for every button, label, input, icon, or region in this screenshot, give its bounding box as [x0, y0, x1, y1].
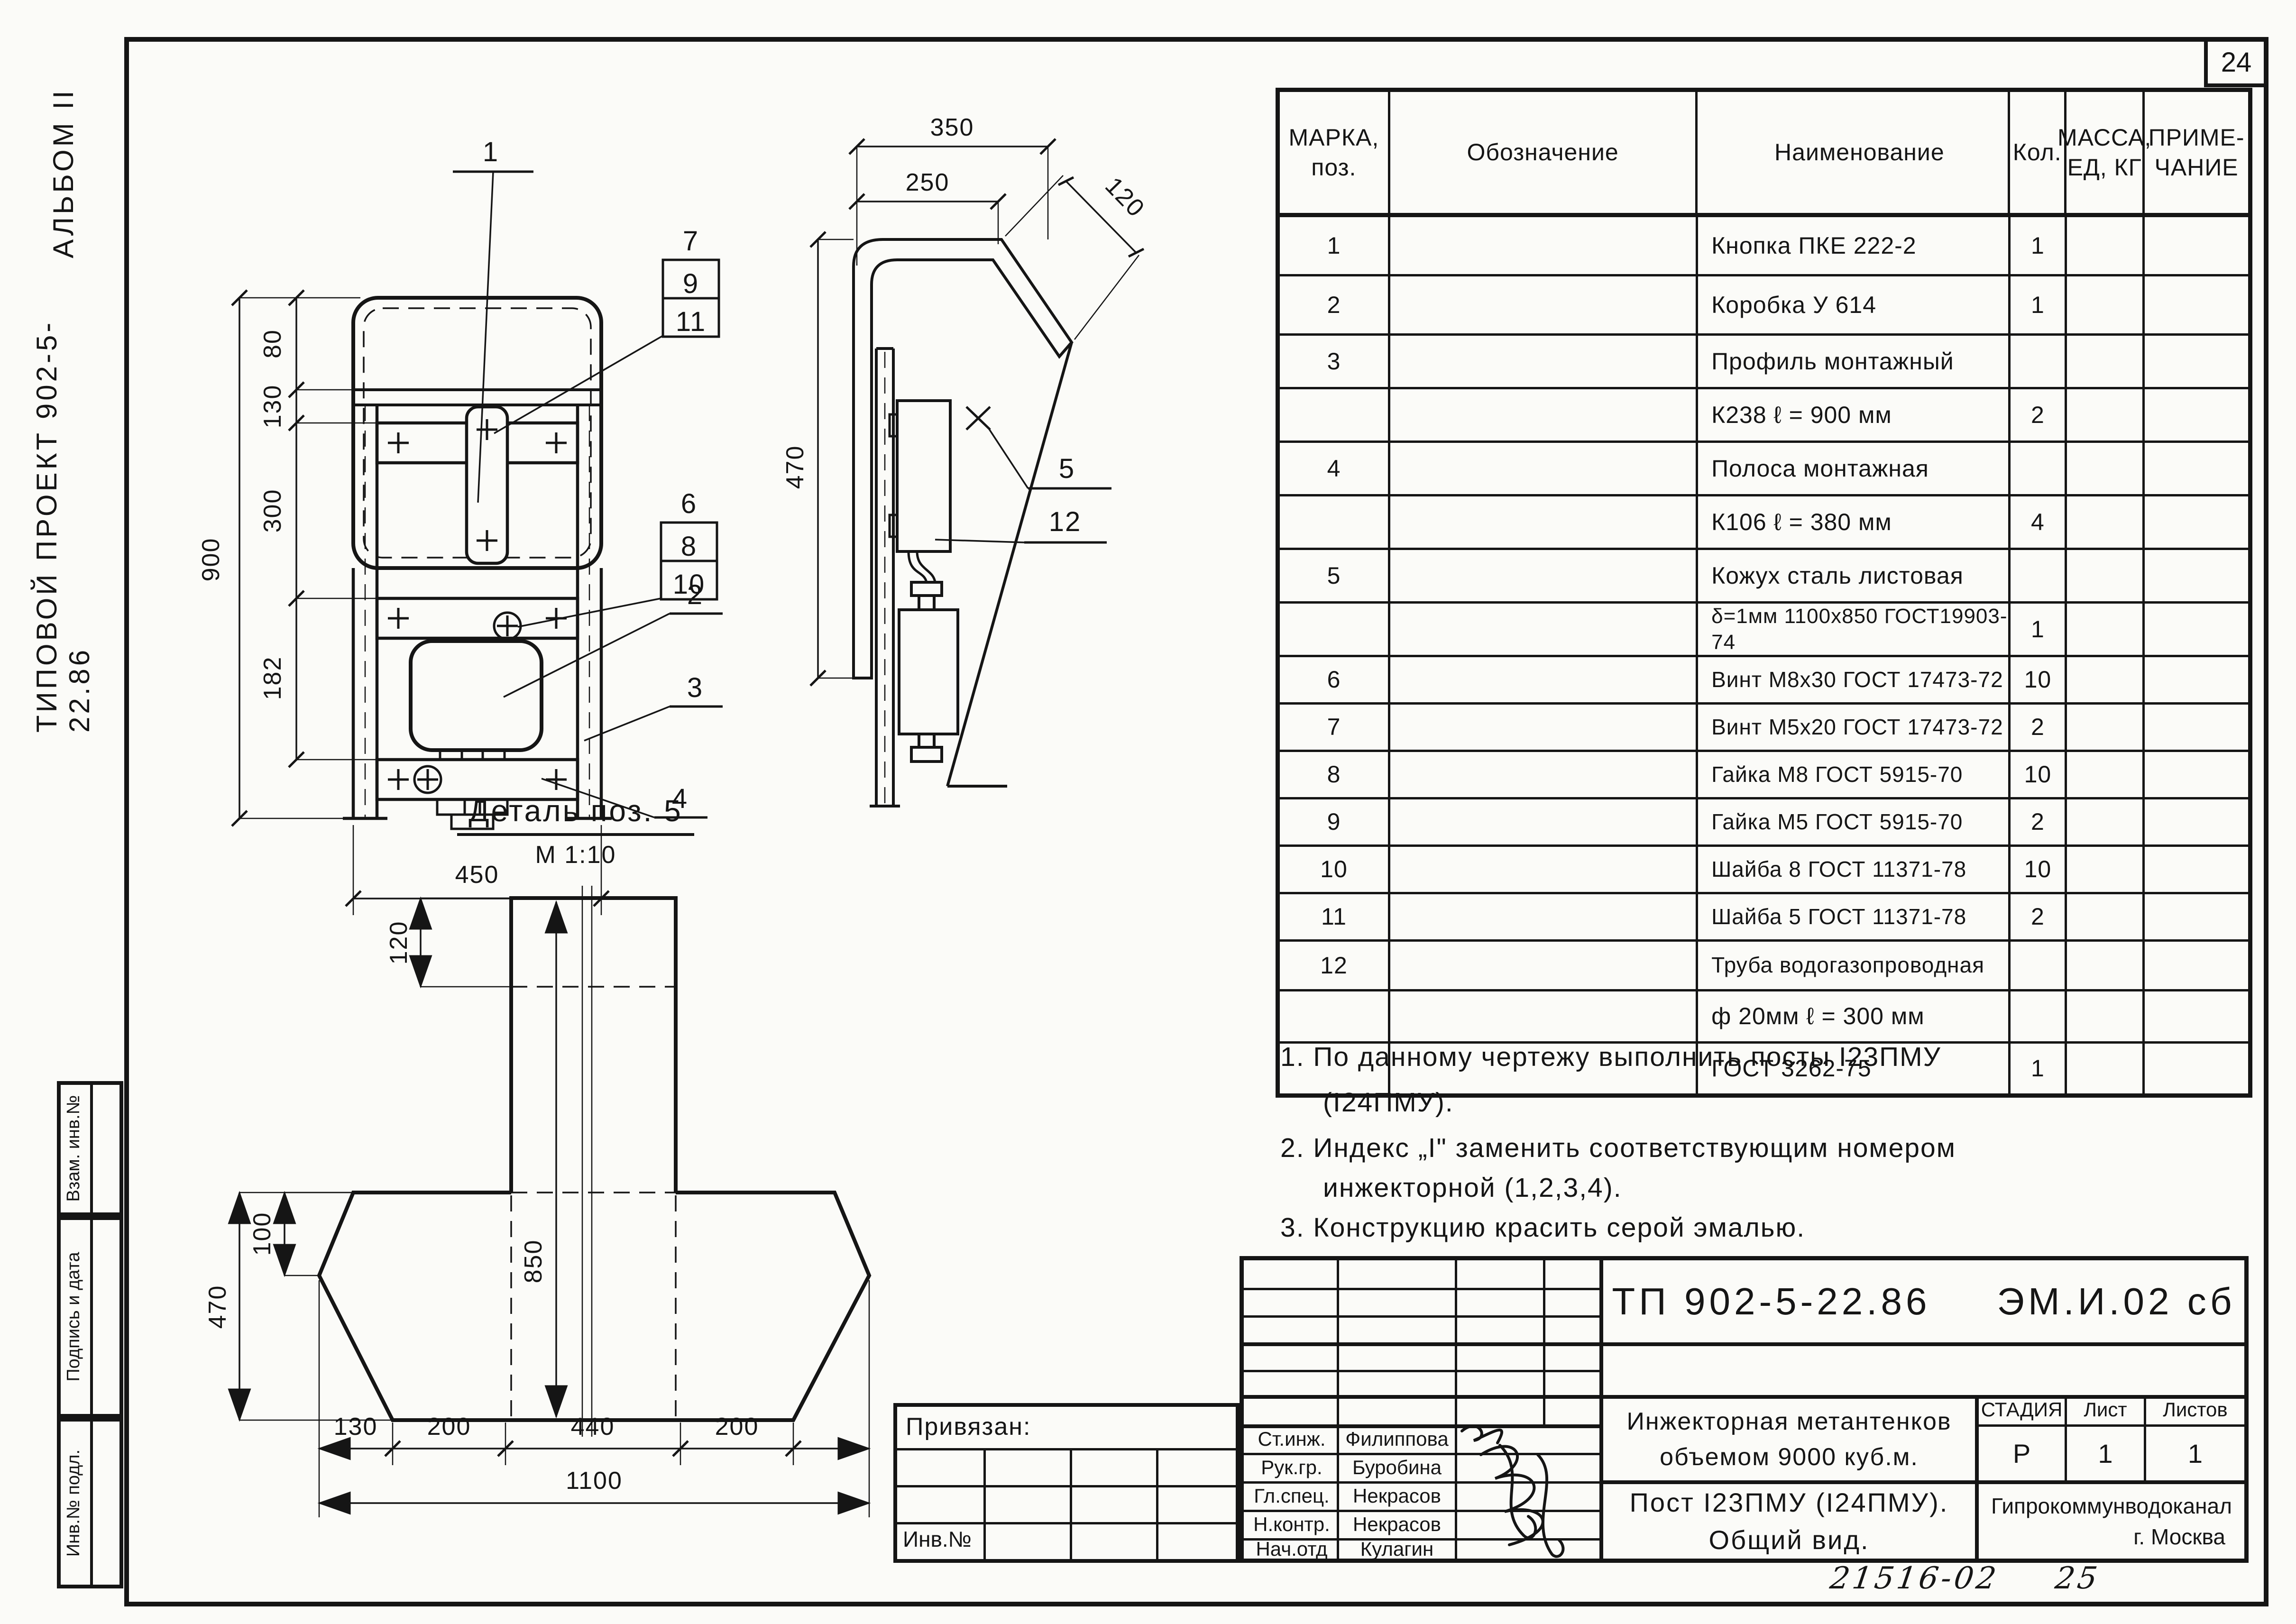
cell-name: δ=1мм 1100х850 ГОСТ19903-74: [1698, 604, 2011, 655]
dim-200b: 200: [715, 1413, 759, 1440]
cell-name: Шайба 5 ГОСТ 11371-78: [1698, 894, 2011, 939]
dim-470-side: 470: [781, 445, 809, 489]
cell-note: [2145, 942, 2248, 989]
note-1-line1: 1. По данному чертежу выполнить посты I2…: [1280, 1041, 1941, 1073]
cell-qty: 10: [2011, 752, 2067, 797]
cell-designation: [1390, 217, 1698, 274]
callout-8: 8: [681, 531, 697, 562]
cell-name: Винт М8х30 ГОСТ 17473-72: [1698, 657, 2011, 702]
dim-100: 100: [248, 1212, 276, 1256]
cell-mark: [1280, 389, 1390, 440]
sheet-value: 1: [2067, 1427, 2144, 1480]
cell-name: Кожух сталь листовая: [1698, 550, 2011, 601]
person-role: Н.контр.: [1247, 1511, 1337, 1538]
table-row: 7 Винт М5х20 ГОСТ 17473-72 2: [1280, 705, 2248, 752]
person-name: Буробина: [1339, 1454, 1455, 1481]
col-header-note: ПРИМЕ- ЧАНИЕ: [2145, 92, 2248, 213]
cell-name: К238 ℓ = 900 мм: [1698, 389, 2011, 440]
cell-note: [2145, 657, 2248, 702]
box-u614: [411, 641, 542, 750]
dim-470-detail: 470: [204, 1285, 231, 1329]
stamp-line: [1244, 1315, 1599, 1318]
cell-note: [2145, 336, 2248, 387]
cell-note: [2145, 276, 2248, 333]
callout-7: 7: [683, 226, 699, 257]
org-line1: Гипрокоммунводоканал: [1991, 1491, 2232, 1521]
cell-name: Гайка М5 ГОСТ 5915-70: [1698, 799, 2011, 844]
organization-cell: Гипрокоммунводоканал г. Москва: [1979, 1484, 2244, 1559]
cell-qty: 2: [2011, 389, 2067, 440]
person-role: Гл.спец.: [1247, 1482, 1337, 1510]
signatures-scribble: [1452, 1412, 1609, 1569]
parts-table-header: МАРКА, поз. Обозначение Наименование Кол…: [1280, 92, 2248, 217]
sheets-label: Листов: [2146, 1395, 2244, 1424]
cell-name: Полоса монтажная: [1698, 443, 2011, 494]
cell-mass: [2067, 443, 2145, 494]
callout-1: 1: [483, 137, 499, 167]
cell-qty: [2011, 336, 2067, 387]
cell-mass: [2067, 705, 2145, 750]
cell-designation: [1390, 389, 1698, 440]
cell-note: [2145, 705, 2248, 750]
cell-qty: 4: [2011, 496, 2067, 548]
sheet-label: Лист: [2067, 1395, 2144, 1424]
person-name: Филиппова: [1339, 1425, 1455, 1453]
cell-designation: [1390, 276, 1698, 333]
cell-designation: [1390, 799, 1698, 844]
cell-name: Гайка М8 ГОСТ 5915-70: [1698, 752, 2011, 797]
table-row: 9 Гайка М5 ГОСТ 5915-70 2: [1280, 799, 2248, 847]
cell-mark: [1280, 991, 1390, 1041]
cell-designation: [1390, 336, 1698, 387]
table-row: 2 Коробка У 614 1: [1280, 276, 2248, 336]
stamp-line: [1975, 1395, 1979, 1559]
person-name: Некрасов: [1339, 1511, 1455, 1538]
cell-name: ф 20мм ℓ = 300 мм: [1698, 991, 2011, 1041]
table-row: 1 Кнопка ПКЕ 222-2 1: [1280, 217, 2248, 276]
callout-5: 5: [1059, 453, 1075, 484]
note-2-line1: 2. Индекс „I" заменить соответствующим н…: [1280, 1132, 1956, 1164]
cell-mass: [2067, 942, 2145, 989]
attach-line: [1156, 1448, 1158, 1559]
cell-qty: 1: [2011, 217, 2067, 274]
note-1-line2: (I24ПМУ).: [1323, 1087, 1454, 1118]
cell-qty: [2011, 550, 2067, 601]
table-row: 5 Кожух сталь листовая: [1280, 550, 2248, 604]
attach-label: Привязан:: [906, 1413, 1031, 1441]
col-header-mass: МАССА, ЕД, КГ: [2066, 92, 2145, 213]
cell-mass: [2067, 799, 2145, 844]
cell-name: Коробка У 614: [1698, 276, 2011, 333]
detail-scale: М 1:10: [535, 841, 616, 869]
dim-182: 182: [259, 656, 286, 700]
cell-mass: [2067, 847, 2145, 892]
doc-number: ТП 902-5-22.86: [1612, 1280, 1930, 1323]
note-3: 3. Конструкцию красить серой эмалью.: [1280, 1212, 1805, 1243]
dim-300: 300: [259, 489, 286, 533]
dim-80: 80: [259, 329, 286, 358]
table-row: 12 Труба водогазопроводная: [1280, 942, 2248, 991]
archive-number-value: 21516-02: [1828, 1561, 2001, 1596]
dim-1100: 1100: [566, 1467, 623, 1495]
cell-note: [2145, 389, 2248, 440]
cell-name: Кнопка ПКЕ 222-2: [1698, 217, 2011, 274]
dim-440: 440: [571, 1413, 615, 1440]
cell-designation: [1390, 705, 1698, 750]
table-row: 10 Шайба 8 ГОСТ 11371-78 10: [1280, 847, 2248, 894]
table-row: К238 ℓ = 900 мм 2: [1280, 389, 2248, 443]
cell-mark: 6: [1280, 657, 1390, 702]
cell-mark: 4: [1280, 443, 1390, 494]
person-name: Кулагин: [1339, 1539, 1455, 1559]
cell-qty: [2011, 991, 2067, 1041]
cell-designation: [1390, 496, 1698, 548]
cell-qty: 1: [2011, 604, 2067, 655]
table-row: 4 Полоса монтажная: [1280, 443, 2248, 496]
dim-120-detail: 120: [385, 921, 413, 965]
table-row: δ=1мм 1100х850 ГОСТ19903-74 1: [1280, 604, 2248, 657]
cell-qty: 10: [2011, 657, 2067, 702]
drawing-title-cell: Пост I23ПМУ (I24ПМУ). Общий вид.: [1603, 1484, 1975, 1559]
dim-250: 250: [906, 169, 950, 196]
person-name: Некрасов: [1339, 1482, 1455, 1510]
cell-qty: 10: [2011, 847, 2067, 892]
table-row: 8 Гайка М8 ГОСТ 5915-70 10: [1280, 752, 2248, 799]
cell-note: [2145, 550, 2248, 601]
cell-designation: [1390, 550, 1698, 601]
button-side: [897, 401, 950, 551]
table-row: К106 ℓ = 380 мм 4: [1280, 496, 2248, 550]
stamp-line: [1244, 1288, 1599, 1290]
side-view-drawing: 350 250 120 470 5 12: [781, 114, 1150, 806]
stage-label: СТАДИЯ: [1979, 1395, 2065, 1424]
stamp-line: [1244, 1370, 1599, 1372]
cell-qty: 2: [2011, 705, 2067, 750]
cell-designation: [1390, 942, 1698, 989]
callout-2: 2: [687, 579, 703, 610]
cell-mass: [2067, 389, 2145, 440]
detail-view-drawing: Деталь поз. 5 М 1:10: [204, 794, 869, 1517]
pipe-cylinder: [899, 582, 958, 762]
cell-mass: [2067, 1044, 2145, 1093]
cell-mass: [2067, 752, 2145, 797]
stamp-line: [1599, 1480, 2244, 1484]
attach-line: [897, 1485, 1236, 1487]
cell-mass: [2067, 276, 2145, 333]
cell-name: Профиль монтажный: [1698, 336, 2011, 387]
cell-designation: [1390, 991, 1698, 1041]
cell-designation: [1390, 443, 1698, 494]
callout-12: 12: [1049, 506, 1082, 537]
cell-designation: [1390, 657, 1698, 702]
drawing-title-line2: Общий вид.: [1708, 1522, 1869, 1559]
parts-table: МАРКА, поз. Обозначение Наименование Кол…: [1276, 88, 2252, 1098]
archive-number: 21516-02 25: [1828, 1561, 2102, 1596]
subject-line2: объемом 9000 куб.м.: [1660, 1440, 1919, 1475]
cell-qty: 1: [2011, 276, 2067, 333]
cell-note: [2145, 217, 2248, 274]
title-block: ТП 902-5-22.86 ЭМ.И.02 сб Инжекторная ме…: [1240, 1256, 2249, 1563]
table-row: 11 Шайба 5 ГОСТ 11371-78 2: [1280, 894, 2248, 942]
cell-mark: 11: [1280, 894, 1390, 939]
dim-200a: 200: [427, 1413, 471, 1440]
sheets-value: 1: [2146, 1427, 2244, 1480]
cell-qty: 1: [2011, 1044, 2067, 1093]
attach-block: Привязан: Инв.№: [893, 1403, 1240, 1563]
cell-designation: [1390, 894, 1698, 939]
cell-designation: [1390, 604, 1698, 655]
cell-mark: 10: [1280, 847, 1390, 892]
attach-line: [1070, 1448, 1072, 1559]
cell-mass: [2067, 336, 2145, 387]
person-role: Рук.гр.: [1247, 1454, 1337, 1481]
dim-900: 900: [197, 538, 225, 582]
stamp-line: [1244, 1342, 2244, 1346]
dim-130: 130: [259, 385, 286, 429]
cell-note: [2145, 991, 2248, 1041]
cell-mass: [2067, 894, 2145, 939]
detail-title: Деталь поз. 5: [468, 794, 683, 828]
callout-3: 3: [687, 672, 703, 703]
dim-350: 350: [930, 114, 974, 141]
cell-mass: [2067, 550, 2145, 601]
cell-name: Винт М5х20 ГОСТ 17473-72: [1698, 705, 2011, 750]
table-row: 6 Винт М8х30 ГОСТ 17473-72 10: [1280, 657, 2248, 705]
cell-mark: 5: [1280, 550, 1390, 601]
cell-mark: 8: [1280, 752, 1390, 797]
subject-cell: Инжекторная метантенков объемом 9000 куб…: [1603, 1399, 1975, 1480]
cell-mark: 2: [1280, 276, 1390, 333]
dim-120-slant: 120: [1100, 172, 1150, 223]
cell-mark: 12: [1280, 942, 1390, 989]
col-header-name: Наименование: [1698, 92, 2010, 213]
cell-name: Шайба 8 ГОСТ 11371-78: [1698, 847, 2011, 892]
cell-note: [2145, 894, 2248, 939]
cell-mark: 1: [1280, 217, 1390, 274]
callout-9: 9: [683, 268, 699, 299]
org-line2: г. Москва: [2133, 1522, 2244, 1552]
cell-qty: [2011, 942, 2067, 989]
cell-mass: [2067, 604, 2145, 655]
table-row: ф 20мм ℓ = 300 мм: [1280, 991, 2248, 1044]
side-view-dims: [810, 139, 1144, 686]
cell-name: Труба водогазопроводная: [1698, 942, 2011, 989]
col-header-mark: МАРКА, поз.: [1280, 92, 1390, 213]
cell-name: К106 ℓ = 380 мм: [1698, 496, 2011, 548]
cell-note: [2145, 752, 2248, 797]
side-view-callout-lines: [935, 407, 1111, 542]
stage-value: Р: [1979, 1427, 2065, 1480]
cell-designation: [1390, 752, 1698, 797]
drawing-sheet: 24 АЛЬБОМ II ТИПОВОЙ ПРОЕКТ 902-5-22.86 …: [0, 0, 2296, 1624]
person-role: Ст.инж.: [1247, 1425, 1337, 1453]
cell-mass: [2067, 217, 2145, 274]
doc-code: ЭМ.И.02 сб: [1997, 1280, 2235, 1323]
cell-note: [2145, 443, 2248, 494]
subject-line1: Инжекторная метантенков: [1626, 1404, 1951, 1440]
cell-qty: [2011, 443, 2067, 494]
attach-line: [897, 1448, 1236, 1450]
cell-note: [2145, 604, 2248, 655]
cell-qty: 2: [2011, 894, 2067, 939]
cell-note: [2145, 496, 2248, 548]
person-role: Нач.отд: [1247, 1539, 1337, 1559]
cell-mark: 9: [1280, 799, 1390, 844]
cell-qty: 2: [2011, 799, 2067, 844]
dim-130-btm: 130: [334, 1413, 378, 1440]
cell-mass: [2067, 496, 2145, 548]
inv-number-label: Инв.№: [903, 1526, 972, 1552]
cell-mark: [1280, 604, 1390, 655]
note-2-line2: инжекторной (1,2,3,4).: [1323, 1172, 1622, 1203]
drawing-title-line1: Пост I23ПМУ (I24ПМУ).: [1630, 1484, 1949, 1521]
cell-mark: 7: [1280, 705, 1390, 750]
attach-line: [983, 1448, 986, 1559]
dim-850: 850: [520, 1239, 547, 1284]
doc-number-cell: ТП 902-5-22.86 ЭМ.И.02 сб: [1603, 1260, 2244, 1342]
cell-mark: 3: [1280, 336, 1390, 387]
cell-note: [2145, 847, 2248, 892]
cell-note: [2145, 799, 2248, 844]
dim-450: 450: [455, 861, 499, 889]
callout-11: 11: [676, 306, 706, 337]
table-row: 3 Профиль монтажный: [1280, 336, 2248, 389]
cell-designation: [1390, 847, 1698, 892]
archive-page-ref: 25: [2053, 1561, 2102, 1596]
cell-mass: [2067, 991, 2145, 1041]
callout-6: 6: [681, 488, 697, 519]
cell-note: [2145, 1044, 2248, 1093]
cell-mark: [1280, 496, 1390, 548]
cell-mass: [2067, 657, 2145, 702]
col-header-designation: Обозначение: [1390, 92, 1698, 213]
attach-line: [897, 1522, 1236, 1524]
